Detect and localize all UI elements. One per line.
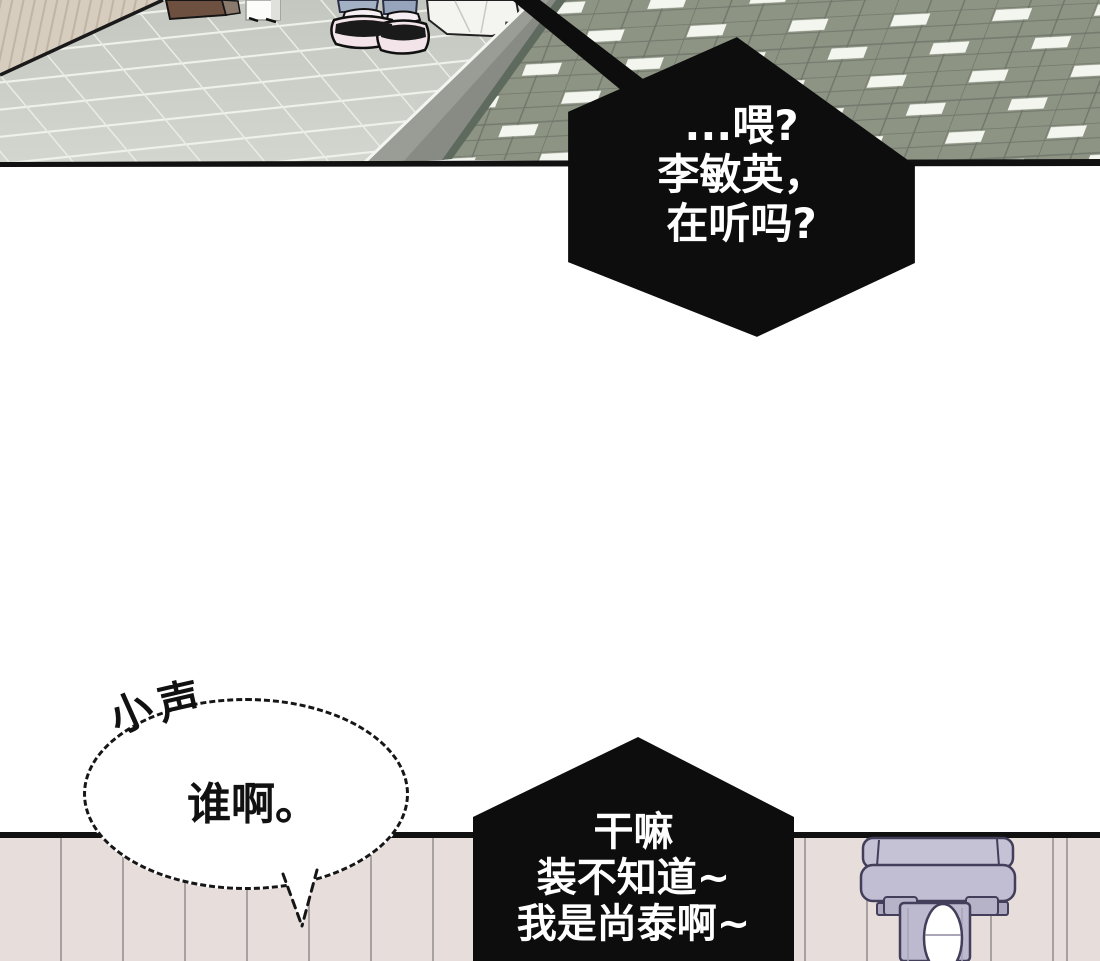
bubble-line: 在听吗? <box>566 199 917 248</box>
phone-bubble-bottom-text: 干嘛 装不知道~ 我是尚泰啊~ <box>473 737 794 947</box>
sfx-whisper-char-2: 声 <box>154 677 204 727</box>
bubble-line: 我是尚泰啊~ <box>473 901 794 947</box>
street-scene-panel <box>0 0 1100 167</box>
white-pillar <box>246 0 280 22</box>
whisper-bubble-tail <box>270 866 322 930</box>
bubble-line: 干嘛 <box>473 809 794 855</box>
bubble-line: 装不知道~ <box>473 855 794 901</box>
bubble-line: 李敏英， <box>566 150 917 199</box>
shower-fixture <box>848 836 1023 961</box>
comic-page: ...喂? 李敏英， 在听吗? 干嘛 装不知道~ 我是尚泰啊~ 谁啊。 <box>0 0 1100 961</box>
wall-panel-seam <box>1066 838 1068 961</box>
phone-speech-bubble-bottom: 干嘛 装不知道~ 我是尚泰啊~ <box>473 737 794 961</box>
